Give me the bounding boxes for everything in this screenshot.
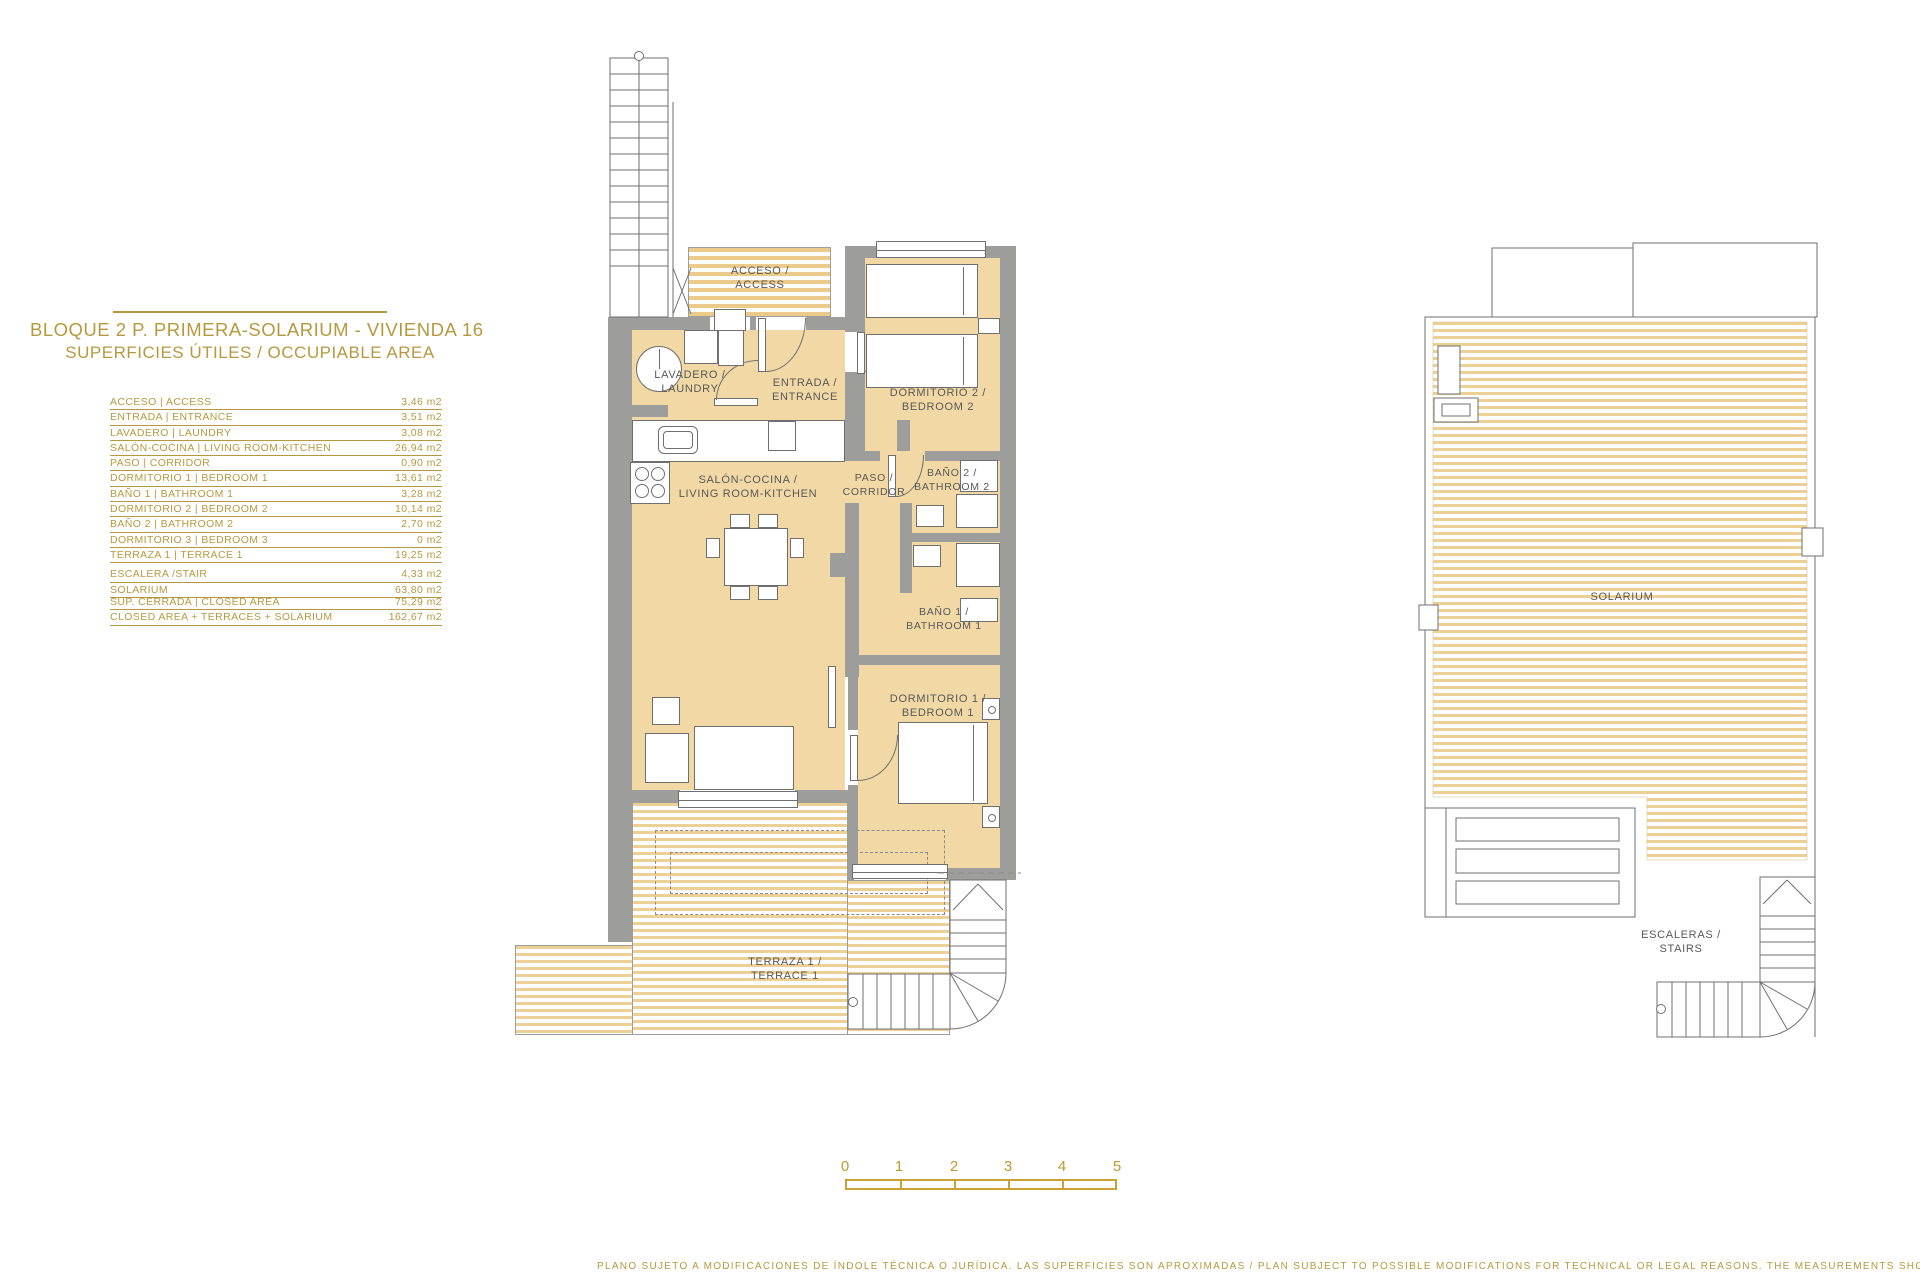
kitchen-sink-icon (658, 426, 698, 454)
bed-double (898, 722, 988, 804)
door-leaf-bedroom2 (857, 332, 865, 374)
terrace-stairs (843, 868, 1025, 1040)
wall-bedroom2-left-a (845, 246, 865, 332)
wall-bedroom1-left-a (848, 655, 858, 730)
side-table (652, 697, 680, 725)
dining-table (724, 528, 788, 586)
wall-bathroom1-bottom (848, 655, 1000, 665)
scale-tick: 5 (1105, 1158, 1129, 1175)
floor-plan-page: BLOQUE 2 P. PRIMERA-SOLARIUM - VIVIENDA … (0, 0, 1920, 1280)
table-row: LAVADERO | LAUNDRY3,08 m2 (110, 426, 442, 441)
solarium-drawing (1418, 238, 1828, 1048)
areas-table: ACCESO | ACCESS3,46 m2 ENTRADA | ENTRANC… (110, 395, 442, 598)
armchair (645, 733, 689, 783)
laundry-appliance (714, 309, 746, 331)
nightstand (982, 806, 1000, 828)
title-rule (113, 311, 387, 313)
table-row: DORMITORIO 1 | BEDROOM 113,61 m2 (110, 471, 442, 486)
table-row-total: CLOSED AREA + TERRACES + SOLARIUM162,67 … (110, 610, 442, 625)
shower-bathroom1 (956, 543, 1000, 587)
scale-tick: 3 (996, 1158, 1020, 1175)
wall-corridor-left-a (845, 420, 859, 460)
wall-stub-corridor (830, 553, 848, 577)
room-label-bano2: BAÑO 2 /BATHROOM 2 (914, 466, 990, 494)
wall-corridor-right-b (900, 503, 912, 593)
washing-machine-icon (718, 330, 744, 366)
room-label-solarium: SOLARIUM (1590, 590, 1653, 604)
chair (730, 514, 750, 528)
chair (730, 586, 750, 600)
totals-table: SUP. CERRADA | CLOSED AREA75,29 m2 CLOSE… (110, 595, 442, 626)
toilet-bathroom2 (956, 494, 998, 528)
room-label-lavadero: LAVADERO /LAUNDRY (654, 368, 725, 396)
fridge-icon (768, 421, 796, 451)
wall-salon-bottom-b (795, 790, 858, 802)
scale-tick: 1 (887, 1158, 911, 1175)
bed-single (866, 334, 978, 388)
room-label-dormitorio2: DORMITORIO 2 /BEDROOM 2 (890, 386, 986, 414)
page-title: BLOQUE 2 P. PRIMERA-SOLARIUM - VIVIENDA … (30, 319, 470, 341)
table-row: ACCESO | ACCESS3,46 m2 (110, 395, 442, 410)
room-label-acceso: ACCESO /ACCESS (731, 264, 789, 292)
sink-bathroom1 (913, 545, 941, 567)
room-label-salon: SALÓN-COCINA /LIVING ROOM-KITCHEN (679, 473, 818, 501)
table-row: SALÓN-COCINA | LIVING ROOM-KITCHEN26,94 … (110, 441, 442, 456)
table-row: BAÑO 1 | BATHROOM 13,28 m2 (110, 487, 442, 502)
terrace-area-left (515, 945, 633, 1035)
chair (706, 538, 720, 558)
wall-corridor-right-a (897, 420, 910, 451)
wall-salon-bottom-a (608, 790, 680, 802)
nightstand (978, 318, 1000, 334)
chair (758, 586, 778, 600)
sink-bathroom2 (916, 505, 944, 527)
disclaimer-text: PLANO SUJETO A MODIFICACIONES DE ÍNDOLE … (597, 1261, 1920, 1272)
wall-corridor-left-b (845, 503, 859, 677)
scale-tick: 2 (942, 1158, 966, 1175)
table-row-total: SUP. CERRADA | CLOSED AREA75,29 m2 (110, 595, 442, 610)
stove-icon (630, 462, 670, 504)
window-bedroom2 (876, 241, 986, 258)
table-row: ENTRADA | ENTRANCE3,51 m2 (110, 410, 442, 425)
table-row: TERRAZA 1 | TERRACE 119,25 m2 (110, 548, 442, 563)
tv-unit (828, 666, 836, 728)
wall-bathrooms-divider (900, 533, 1000, 542)
table-row: ESCALERA /STAIR4,33 m2 (110, 567, 442, 582)
bed-single (866, 264, 978, 318)
laundry-counter (684, 330, 718, 364)
wall-left (608, 317, 632, 942)
room-label-entrada: ENTRADA /ENTRANCE (772, 376, 838, 404)
scale-ruler (845, 1179, 1117, 1190)
wall-stub-laundry (632, 405, 668, 417)
room-label-bano1: BAÑO 1 /BATHROOM 1 (906, 605, 982, 633)
table-row: BAÑO 2 | BATHROOM 22,70 m2 (110, 517, 442, 532)
room-label-paso: PASO /CORRIDOR (843, 471, 906, 499)
window-salon-terrace (678, 791, 798, 808)
chair (758, 514, 778, 528)
scale-tick: 0 (833, 1158, 857, 1175)
room-label-terraza: TERRAZA 1 /TERRACE 1 (748, 955, 822, 983)
door-leaf-entrance (758, 318, 766, 372)
table-row: PASO | CORRIDOR0,90 m2 (110, 456, 442, 471)
table-row: DORMITORIO 3 | BEDROOM 30 m2 (110, 533, 442, 548)
scale-tick: 4 (1050, 1158, 1074, 1175)
page-subtitle: SUPERFICIES ÚTILES / OCCUPIABLE AREA (30, 343, 470, 363)
door-leaf-bedroom1 (850, 735, 858, 781)
room-label-dormitorio1: DORMITORIO 1 /BEDROOM 1 (890, 692, 986, 720)
access-stairs (598, 44, 698, 324)
wall-right (1000, 246, 1016, 878)
chair (790, 538, 804, 558)
table-row: DORMITORIO 2 | BEDROOM 210,14 m2 (110, 502, 442, 517)
sofa (694, 726, 794, 790)
room-label-escaleras: ESCALERAS /STAIRS (1641, 928, 1721, 956)
